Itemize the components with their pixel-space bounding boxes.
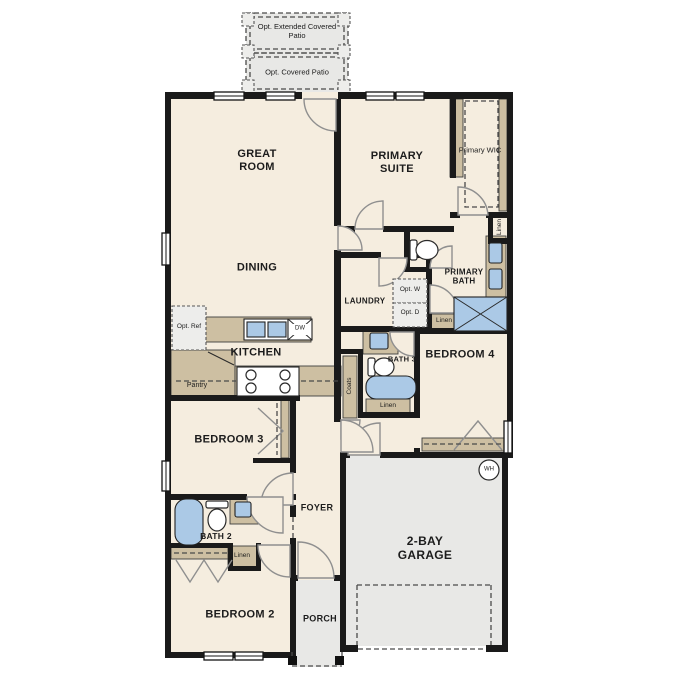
dishwasher-label: DW <box>295 325 305 332</box>
bedroom4-label: BEDROOM 4 <box>413 349 508 362</box>
patio-door-opening <box>302 92 338 99</box>
dining-label: DINING <box>217 262 297 275</box>
linen-bath2-label: Linen <box>234 552 250 560</box>
stove <box>237 367 299 396</box>
garage-label: 2-BAY GARAGE <box>390 534 460 562</box>
primary-suite-label: PRIMARY SUITE <box>361 150 433 176</box>
bedroom3-closet-shelf <box>281 400 289 458</box>
linen-bath3-label: Linen <box>380 402 396 410</box>
primary-toilet <box>410 240 438 260</box>
bath2-sink <box>235 502 251 517</box>
bath2-label: BATH 2 <box>186 531 246 541</box>
bedroom3-label: BEDROOM 3 <box>182 434 277 447</box>
bath3-tub <box>366 376 416 399</box>
water-heater-label: WH <box>484 466 494 473</box>
patio-extended-label: Opt. Extended Covered Patio <box>254 23 340 41</box>
great-room-label: GREAT ROOM <box>225 148 289 174</box>
primary-bath-label: PRIMARY BATH <box>434 268 494 287</box>
linen-hall-label: Linen <box>496 219 504 235</box>
primary-wic-label: Primary WIC <box>458 147 502 156</box>
bath2-toilet <box>206 501 228 531</box>
porch-label: PORCH <box>290 614 350 625</box>
opt-washer-label: Opt. W <box>398 286 422 294</box>
bedroom2-label: BEDROOM 2 <box>193 609 288 622</box>
bath3-sink <box>370 333 388 349</box>
linen-primary-label: Linen <box>436 317 452 325</box>
floor-plan-drawing <box>0 0 687 687</box>
kitchen-label: KITCHEN <box>216 347 296 360</box>
laundry-label: LAUNDRY <box>330 296 400 305</box>
primary-shower <box>454 297 507 331</box>
kitchen-island-sink <box>244 319 288 340</box>
patio-covered-label: Opt. Covered Patio <box>237 69 357 78</box>
foyer-label: FOYER <box>287 503 347 514</box>
primary-sink-1 <box>489 243 502 263</box>
coats-label: Coats <box>346 378 354 395</box>
pantry-label: Pantry <box>187 382 207 390</box>
opt-ref-label: Opt. Ref <box>176 323 202 331</box>
floor-plan: Opt. Extended Covered Patio Opt. Covered… <box>0 0 687 687</box>
opt-dryer-label: Opt. D <box>398 309 422 317</box>
